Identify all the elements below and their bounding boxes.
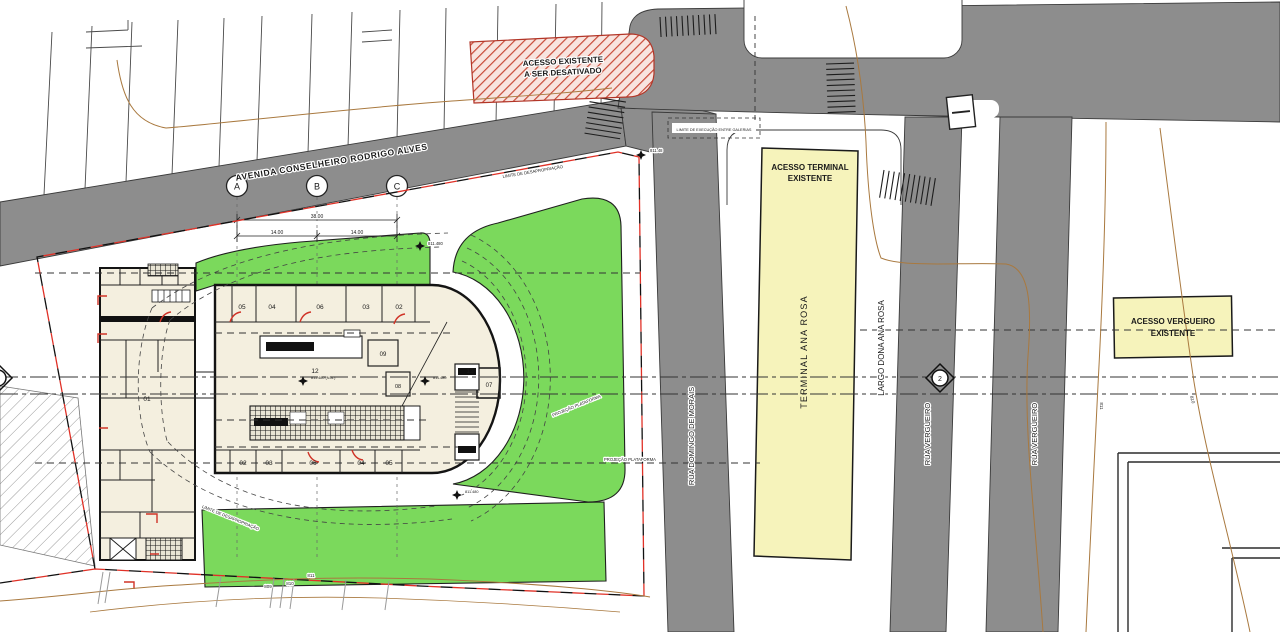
elev-hall-right: 811.480 [433, 376, 446, 380]
street-rua-domingo: RUA DOMINGO DE MORAIS [687, 387, 696, 485]
room-top-03: 03 [362, 304, 370, 311]
acesso-vergueiro-line2: EXISTENTE [1151, 329, 1196, 338]
street-rua-vergueiro-2: RUA VERGUEIRO [1030, 403, 1039, 466]
note-galerias: LIMITE DE EXECUÇÃO ENTRE GALERIAS [677, 127, 752, 132]
elev-bottom: 811.480 [465, 490, 478, 494]
bus-stop-marker [946, 95, 975, 130]
island-top [744, 0, 962, 58]
room-bot-04: 04 [357, 460, 365, 467]
acesso-terminal-line1: ACESSO TERMINAL [771, 163, 848, 172]
room-07: 07 [486, 383, 493, 389]
room-08: 08 [395, 384, 401, 390]
elev-top: 811.480 [428, 241, 443, 246]
acesso-vergueiro-line1: ACESSO VERGUEIRO [1131, 317, 1215, 326]
street-rua-vergueiro-1: RUA VERGUEIRO [923, 403, 932, 466]
hall-12-right: 12 [466, 368, 474, 375]
room-bot-02: 02 [239, 460, 247, 467]
elev-hall-left: 811.480 (N.A.) [311, 376, 336, 380]
room-top-06: 06 [316, 304, 324, 311]
site-plan-drawing: AVENIDA CONSELHEIRO RODRIGO ALVES RUA DO… [0, 0, 1280, 632]
dim-seg2: 14.00 [351, 230, 364, 236]
dim-seg1: 14.00 [271, 230, 284, 236]
largo-dona-ana-rosa-label: LARGO DONA ANA ROSA [877, 300, 886, 396]
grid-letter-b: B [314, 182, 320, 192]
terminal-ana-rosa-label: TERMINAL ANA ROSA [799, 295, 809, 409]
contour-right-811: 811 [1099, 402, 1104, 410]
note-projecao-horiz: PROJEÇÃO PLATAFORMA [604, 457, 656, 462]
grid-letter-c: C [394, 182, 401, 192]
contour-811: 811 [307, 573, 315, 578]
room-top-04: 04 [268, 304, 276, 311]
contour-810: 810 [286, 581, 294, 586]
acesso-terminal-line2: EXISTENTE [788, 174, 833, 183]
dim-total: 38.00 [311, 214, 324, 220]
grid-letter-a: A [234, 182, 240, 192]
green-south [202, 502, 606, 587]
hall-12-left: 12 [311, 368, 319, 375]
room-top-02: 02 [395, 304, 403, 311]
acesso-vergueiro-box [1113, 296, 1232, 358]
site-plan-svg: AVENIDA CONSELHEIRO RODRIGO ALVES RUA DO… [0, 0, 1280, 632]
rua-vergueiro-road-2 [986, 117, 1072, 632]
room-bot-06: 06 [309, 460, 317, 467]
room-09: 09 [380, 352, 387, 358]
elev-corner: 811.48 [650, 148, 663, 153]
contour-809: 809 [264, 584, 272, 589]
section-marker-number: 2 [938, 376, 942, 383]
room-bot-03: 03 [265, 460, 273, 467]
room-annex-01: 01 [143, 396, 151, 403]
room-top-05: 05 [238, 304, 246, 311]
room-bot-05: 05 [385, 460, 393, 467]
